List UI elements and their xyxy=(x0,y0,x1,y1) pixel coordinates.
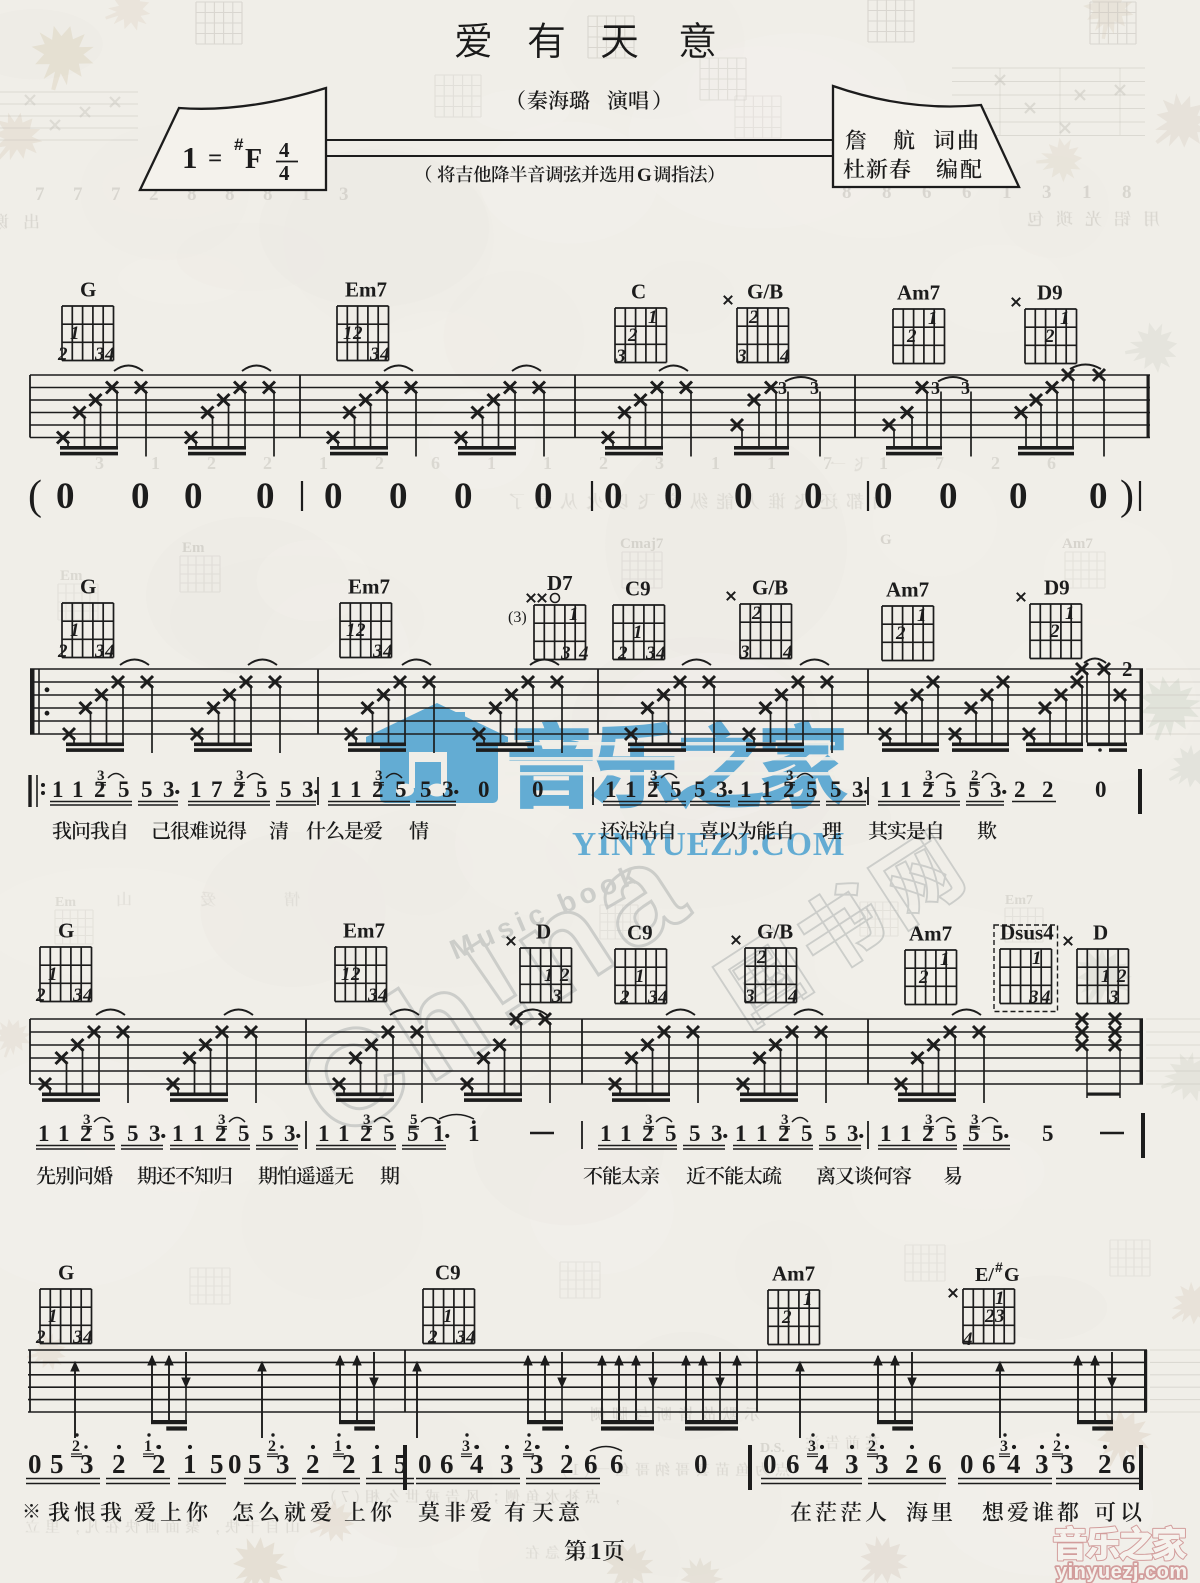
svg-text:2: 2 xyxy=(599,453,608,473)
svg-text:1: 1 xyxy=(350,777,362,802)
svg-text:2: 2 xyxy=(868,1438,876,1455)
svg-text:3: 3 xyxy=(925,768,933,784)
svg-text:G: G xyxy=(880,532,892,548)
svg-text:4: 4 xyxy=(470,1449,484,1479)
svg-text:2: 2 xyxy=(984,1306,995,1327)
svg-text:1: 1 xyxy=(1082,182,1092,203)
svg-text:7: 7 xyxy=(823,453,832,473)
svg-text:4: 4 xyxy=(655,643,666,664)
svg-text:1: 1 xyxy=(620,1121,632,1146)
svg-text:1: 1 xyxy=(443,1306,453,1327)
svg-text:1: 1 xyxy=(928,308,938,329)
svg-text:6: 6 xyxy=(440,1449,454,1479)
svg-text:2: 2 xyxy=(112,1449,126,1479)
svg-text:3: 3 xyxy=(647,987,658,1008)
svg-text:3: 3 xyxy=(372,641,383,662)
svg-text:C9: C9 xyxy=(435,1261,461,1285)
svg-text:2: 2 xyxy=(895,623,906,644)
svg-text:6: 6 xyxy=(786,1449,800,1479)
svg-text:1: 1 xyxy=(341,964,351,985)
svg-text:0: 0 xyxy=(478,777,490,802)
svg-text:E/: E/ xyxy=(975,1264,994,1286)
svg-text:1: 1 xyxy=(144,1438,152,1455)
svg-text:7: 7 xyxy=(935,453,944,473)
svg-text:Em7: Em7 xyxy=(1005,893,1033,908)
svg-text:G: G xyxy=(637,165,652,186)
svg-text:3: 3 xyxy=(716,777,728,802)
svg-text:C9: C9 xyxy=(627,921,653,945)
svg-text:1: 1 xyxy=(370,1449,384,1479)
svg-text:1: 1 xyxy=(468,1121,480,1146)
svg-text:3: 3 xyxy=(302,777,314,802)
svg-text:1: 1 xyxy=(343,323,353,344)
svg-text:3: 3 xyxy=(500,1449,514,1479)
svg-text:0: 0 xyxy=(131,476,150,517)
svg-text:3: 3 xyxy=(72,1327,83,1348)
svg-text:6: 6 xyxy=(1047,453,1056,473)
svg-text:1: 1 xyxy=(917,605,927,626)
svg-text:3: 3 xyxy=(781,1112,789,1128)
svg-text:1: 1 xyxy=(756,1121,768,1146)
svg-text:4: 4 xyxy=(962,1329,973,1350)
svg-text:4: 4 xyxy=(382,641,393,662)
svg-text:5: 5 xyxy=(383,1121,395,1146)
svg-text:3: 3 xyxy=(1035,1449,1049,1479)
svg-text:2: 2 xyxy=(560,1449,574,1479)
svg-text:4: 4 xyxy=(782,642,793,663)
svg-text:2: 2 xyxy=(375,453,384,473)
svg-text:D9: D9 xyxy=(1037,281,1063,305)
svg-text:0: 0 xyxy=(534,476,553,517)
svg-text:1: 1 xyxy=(330,777,342,802)
svg-text:2: 2 xyxy=(1053,1438,1061,1455)
svg-text:F: F xyxy=(245,144,262,175)
svg-text:5: 5 xyxy=(945,1121,957,1146)
svg-text:1: 1 xyxy=(625,777,637,802)
svg-text:2: 2 xyxy=(152,1449,166,1479)
svg-text:3: 3 xyxy=(971,1112,979,1128)
svg-text:4: 4 xyxy=(377,985,388,1006)
svg-text:3: 3 xyxy=(367,985,378,1006)
svg-text:0: 0 xyxy=(664,476,683,517)
svg-text:3: 3 xyxy=(645,643,656,664)
svg-text:5: 5 xyxy=(410,1112,418,1128)
svg-text:5: 5 xyxy=(806,777,818,802)
svg-text:3: 3 xyxy=(218,1112,226,1128)
svg-text:1: 1 xyxy=(1060,308,1070,329)
svg-text:3: 3 xyxy=(284,1121,296,1146)
svg-text:(3): (3) xyxy=(508,609,527,626)
svg-text:3: 3 xyxy=(442,777,454,802)
svg-text:5: 5 xyxy=(395,777,407,802)
svg-text:Am7: Am7 xyxy=(772,1262,815,1286)
svg-text:1: 1 xyxy=(182,140,198,175)
svg-text:1: 1 xyxy=(544,965,554,986)
svg-text:yinyuezj.com: yinyuezj.com xyxy=(1056,1561,1188,1583)
svg-text:4: 4 xyxy=(787,986,798,1007)
svg-text:3: 3 xyxy=(711,1121,723,1146)
svg-text:0: 0 xyxy=(418,1449,432,1479)
svg-text:1: 1 xyxy=(38,1121,50,1146)
svg-text:0: 0 xyxy=(939,476,958,517)
svg-text:2: 2 xyxy=(748,307,759,328)
svg-text:3: 3 xyxy=(80,1449,94,1479)
svg-text:(: ( xyxy=(28,473,42,519)
svg-text:0: 0 xyxy=(389,476,408,517)
svg-text:5: 5 xyxy=(689,1121,701,1146)
svg-text:6: 6 xyxy=(928,1449,942,1479)
svg-text:5: 5 xyxy=(238,1121,250,1146)
svg-text:2: 2 xyxy=(1122,657,1133,681)
svg-text:1: 1 xyxy=(880,777,892,802)
svg-text:2: 2 xyxy=(352,323,363,344)
svg-text:7: 7 xyxy=(211,777,223,802)
svg-text:2: 2 xyxy=(559,965,570,986)
svg-text:3: 3 xyxy=(560,643,571,664)
svg-text:2: 2 xyxy=(751,603,762,624)
svg-text:5: 5 xyxy=(141,777,153,802)
svg-text:5: 5 xyxy=(670,777,682,802)
svg-text:3: 3 xyxy=(149,1121,161,1146)
svg-text:3: 3 xyxy=(739,642,750,663)
svg-text:0: 0 xyxy=(454,476,473,517)
svg-text:G/B: G/B xyxy=(752,576,788,600)
svg-text:0: 0 xyxy=(874,476,893,517)
svg-text:1: 1 xyxy=(590,1539,602,1564)
svg-text:3: 3 xyxy=(925,1112,933,1128)
svg-text:3: 3 xyxy=(95,453,104,473)
svg-text:5: 5 xyxy=(801,1121,813,1146)
svg-text:D7: D7 xyxy=(547,571,573,595)
svg-text:1: 1 xyxy=(319,453,328,473)
svg-text:1: 1 xyxy=(52,777,64,802)
svg-text:2: 2 xyxy=(781,1307,792,1328)
svg-text:2: 2 xyxy=(263,453,272,473)
svg-text:4: 4 xyxy=(657,987,668,1008)
svg-text:8: 8 xyxy=(1122,182,1132,203)
svg-text:5: 5 xyxy=(665,1121,677,1146)
svg-text:G: G xyxy=(80,278,96,302)
svg-text:3: 3 xyxy=(236,768,244,784)
svg-text:G: G xyxy=(58,1261,74,1285)
svg-text:2: 2 xyxy=(350,964,361,985)
svg-text:1: 1 xyxy=(711,453,720,473)
svg-text:2: 2 xyxy=(971,768,979,784)
svg-text:4: 4 xyxy=(379,344,390,365)
svg-text:5: 5 xyxy=(248,1449,262,1479)
svg-text:1: 1 xyxy=(48,1306,58,1327)
svg-text:2: 2 xyxy=(906,326,917,347)
svg-text:4: 4 xyxy=(465,1327,476,1348)
svg-text:2: 2 xyxy=(306,1449,320,1479)
svg-text:G: G xyxy=(58,919,74,943)
svg-text:5: 5 xyxy=(945,777,957,802)
svg-text:1: 1 xyxy=(767,453,776,473)
svg-text:Em7: Em7 xyxy=(345,278,387,302)
svg-text:6: 6 xyxy=(1122,1449,1136,1479)
svg-text:1: 1 xyxy=(900,777,912,802)
svg-text:3: 3 xyxy=(462,1438,470,1455)
svg-text:3: 3 xyxy=(994,1306,1005,1327)
svg-text:3: 3 xyxy=(97,768,105,784)
svg-text:=: = xyxy=(208,145,222,172)
svg-text:2: 2 xyxy=(35,1327,46,1348)
svg-text:0: 0 xyxy=(184,476,203,517)
svg-text:4: 4 xyxy=(82,985,93,1006)
svg-text:3: 3 xyxy=(94,641,105,662)
svg-text:2: 2 xyxy=(1116,966,1127,987)
svg-text:2: 2 xyxy=(57,344,68,365)
svg-text:3: 3 xyxy=(1042,182,1052,203)
svg-text:3: 3 xyxy=(83,1112,91,1128)
svg-text:2: 2 xyxy=(905,1449,919,1479)
svg-text:1: 1 xyxy=(433,1121,445,1146)
svg-text:2: 2 xyxy=(72,1438,80,1455)
svg-text:1: 1 xyxy=(740,777,752,802)
svg-text:0: 0 xyxy=(256,476,275,517)
svg-text:G: G xyxy=(1004,1264,1020,1286)
svg-text:Am7: Am7 xyxy=(909,922,952,946)
svg-text:Em: Em xyxy=(182,540,205,556)
svg-text:3: 3 xyxy=(1028,987,1039,1008)
svg-text:3: 3 xyxy=(375,768,383,784)
svg-text:2: 2 xyxy=(756,947,767,968)
svg-text:6: 6 xyxy=(610,1449,624,1479)
svg-text:1: 1 xyxy=(940,949,950,970)
svg-text:4: 4 xyxy=(779,346,790,367)
svg-text:1: 1 xyxy=(48,964,58,985)
svg-text:3: 3 xyxy=(650,768,658,784)
svg-text:4: 4 xyxy=(279,138,290,162)
svg-text:0: 0 xyxy=(228,1449,242,1479)
svg-text:2: 2 xyxy=(1044,326,1055,347)
svg-text:5: 5 xyxy=(210,1449,224,1479)
svg-text:3: 3 xyxy=(808,1438,816,1455)
svg-text:1: 1 xyxy=(190,777,202,802)
svg-text:2: 2 xyxy=(627,325,638,346)
svg-text:5: 5 xyxy=(262,1121,274,1146)
svg-text:Am7: Am7 xyxy=(897,281,940,305)
svg-text:1: 1 xyxy=(803,1289,813,1310)
svg-text:3: 3 xyxy=(615,346,626,367)
svg-text:3: 3 xyxy=(163,777,175,802)
svg-text:0: 0 xyxy=(28,1449,42,1479)
svg-text:6: 6 xyxy=(584,1449,598,1479)
svg-text:2: 2 xyxy=(991,453,1000,473)
svg-text:2: 2 xyxy=(268,1438,276,1455)
svg-text:0: 0 xyxy=(1095,777,1107,802)
svg-text:3: 3 xyxy=(455,1327,466,1348)
svg-text:2: 2 xyxy=(57,641,68,662)
svg-text:3: 3 xyxy=(645,1112,653,1128)
svg-text:0: 0 xyxy=(763,1449,777,1479)
svg-text:G/B: G/B xyxy=(757,920,793,944)
svg-text:0: 0 xyxy=(532,777,544,802)
svg-text:5: 5 xyxy=(420,777,432,802)
svg-text:5: 5 xyxy=(256,777,268,802)
svg-text:4: 4 xyxy=(104,641,115,662)
svg-text:2: 2 xyxy=(524,1438,532,1455)
svg-text:1: 1 xyxy=(346,620,356,641)
svg-text:5: 5 xyxy=(103,1121,115,1146)
svg-text:1: 1 xyxy=(70,323,80,344)
svg-text:4: 4 xyxy=(578,643,589,664)
svg-text:6: 6 xyxy=(982,1449,996,1479)
svg-text:1: 1 xyxy=(318,1121,330,1146)
svg-text:2: 2 xyxy=(1042,777,1054,802)
svg-text:5: 5 xyxy=(825,1121,837,1146)
svg-text:0: 0 xyxy=(324,476,343,517)
svg-text:4: 4 xyxy=(279,161,290,185)
svg-text:7: 7 xyxy=(111,184,121,205)
svg-text:0: 0 xyxy=(1009,476,1028,517)
svg-text:3: 3 xyxy=(363,1112,371,1128)
svg-text:1: 1 xyxy=(58,1121,70,1146)
svg-text:7: 7 xyxy=(35,184,45,205)
svg-text:0: 0 xyxy=(804,476,823,517)
svg-text:4: 4 xyxy=(1040,987,1051,1008)
svg-text:1: 1 xyxy=(633,622,643,643)
svg-text:1: 1 xyxy=(72,777,84,802)
svg-text:1: 1 xyxy=(735,1121,747,1146)
svg-text:1: 1 xyxy=(605,777,617,802)
svg-text:7: 7 xyxy=(73,184,83,205)
svg-text:Em7: Em7 xyxy=(343,919,385,943)
svg-text:5: 5 xyxy=(694,777,706,802)
svg-text:3: 3 xyxy=(72,985,83,1006)
svg-text:2: 2 xyxy=(918,967,929,988)
svg-text:1: 1 xyxy=(1101,966,1111,987)
svg-text:C9: C9 xyxy=(625,577,651,601)
svg-text:3: 3 xyxy=(551,986,562,1007)
svg-text:3: 3 xyxy=(1108,987,1119,1008)
svg-text:3: 3 xyxy=(990,777,1002,802)
svg-text:D: D xyxy=(1093,921,1108,945)
svg-text:2: 2 xyxy=(1049,621,1060,642)
svg-text:5: 5 xyxy=(992,1121,1004,1146)
svg-text:Cmaj7: Cmaj7 xyxy=(620,536,664,552)
svg-text:3: 3 xyxy=(845,1449,859,1479)
svg-text:2: 2 xyxy=(427,1327,438,1348)
svg-text:3: 3 xyxy=(736,346,747,367)
svg-text:3: 3 xyxy=(852,777,864,802)
svg-text:5: 5 xyxy=(830,777,842,802)
svg-text:4: 4 xyxy=(82,1327,93,1348)
svg-text:1: 1 xyxy=(1065,603,1075,624)
svg-text:Am7: Am7 xyxy=(886,578,929,602)
svg-text:1: 1 xyxy=(879,453,888,473)
svg-text:3: 3 xyxy=(369,344,380,365)
svg-text:C: C xyxy=(631,280,646,304)
svg-text:1: 1 xyxy=(70,620,80,641)
svg-text:3: 3 xyxy=(655,453,664,473)
svg-text:1: 1 xyxy=(334,1438,342,1455)
svg-text:5: 5 xyxy=(127,1121,139,1146)
svg-text:1: 1 xyxy=(761,777,773,802)
svg-text:1: 1 xyxy=(172,1121,184,1146)
svg-text:0: 0 xyxy=(694,1449,708,1479)
svg-text:Dsus4: Dsus4 xyxy=(1000,921,1054,945)
svg-text:2: 2 xyxy=(617,643,628,664)
svg-text:1: 1 xyxy=(487,453,496,473)
svg-text:1: 1 xyxy=(635,966,645,987)
svg-text:2: 2 xyxy=(1014,777,1026,802)
svg-text:0: 0 xyxy=(1089,476,1108,517)
svg-text:2: 2 xyxy=(207,453,216,473)
svg-text:6: 6 xyxy=(431,453,440,473)
svg-text:3: 3 xyxy=(1000,1438,1008,1455)
svg-text:): ) xyxy=(1120,473,1134,519)
svg-text:D9: D9 xyxy=(1044,576,1070,600)
svg-text:0: 0 xyxy=(604,476,623,517)
svg-text:1: 1 xyxy=(900,1121,912,1146)
svg-text:3: 3 xyxy=(276,1449,290,1479)
svg-text:2: 2 xyxy=(35,985,46,1006)
svg-text:2: 2 xyxy=(355,620,366,641)
svg-text:3: 3 xyxy=(786,768,794,784)
svg-text:3: 3 xyxy=(94,344,105,365)
svg-text:1: 1 xyxy=(648,307,658,328)
svg-text:1: 1 xyxy=(338,1121,350,1146)
svg-text:5: 5 xyxy=(118,777,130,802)
svg-text:1: 1 xyxy=(193,1121,205,1146)
svg-text:2: 2 xyxy=(342,1449,356,1479)
svg-text:3: 3 xyxy=(339,184,349,205)
svg-text:1: 1 xyxy=(151,453,160,473)
svg-text:G/B: G/B xyxy=(747,280,783,304)
svg-text:#: # xyxy=(995,1259,1003,1275)
svg-text:3: 3 xyxy=(847,1121,859,1146)
svg-text:1: 1 xyxy=(880,1121,892,1146)
svg-text:3: 3 xyxy=(744,986,755,1007)
svg-text:5: 5 xyxy=(50,1449,64,1479)
svg-text:1: 1 xyxy=(600,1121,612,1146)
svg-text:2: 2 xyxy=(1098,1449,1112,1479)
svg-text:5: 5 xyxy=(280,777,292,802)
svg-text:Am7: Am7 xyxy=(1062,536,1093,552)
svg-text:Em7: Em7 xyxy=(348,575,390,599)
svg-text:D: D xyxy=(536,920,551,944)
svg-text:0: 0 xyxy=(56,476,75,517)
svg-text:1: 1 xyxy=(1032,948,1042,969)
svg-text:1: 1 xyxy=(569,604,579,625)
svg-text:G: G xyxy=(80,575,96,599)
svg-text:Em: Em xyxy=(55,895,76,910)
svg-text:1: 1 xyxy=(183,1449,197,1479)
svg-text:2: 2 xyxy=(619,987,630,1008)
svg-text:5: 5 xyxy=(1042,1121,1054,1146)
svg-text:0: 0 xyxy=(960,1449,974,1479)
svg-text:0: 0 xyxy=(734,476,753,517)
svg-text:4: 4 xyxy=(104,344,115,365)
svg-text:#: # xyxy=(234,135,244,154)
